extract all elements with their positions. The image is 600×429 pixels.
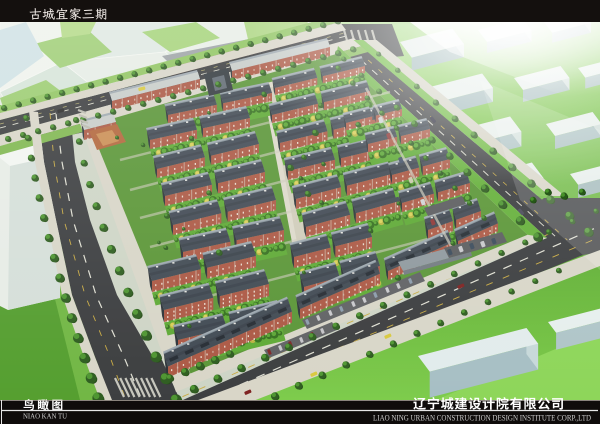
svg-text:NIAO KAN TU: NIAO KAN TU <box>23 413 68 421</box>
svg-text:LIAO NING URBAN CONSTRUCTION D: LIAO NING URBAN CONSTRUCTION DESIGN INST… <box>373 414 591 423</box>
